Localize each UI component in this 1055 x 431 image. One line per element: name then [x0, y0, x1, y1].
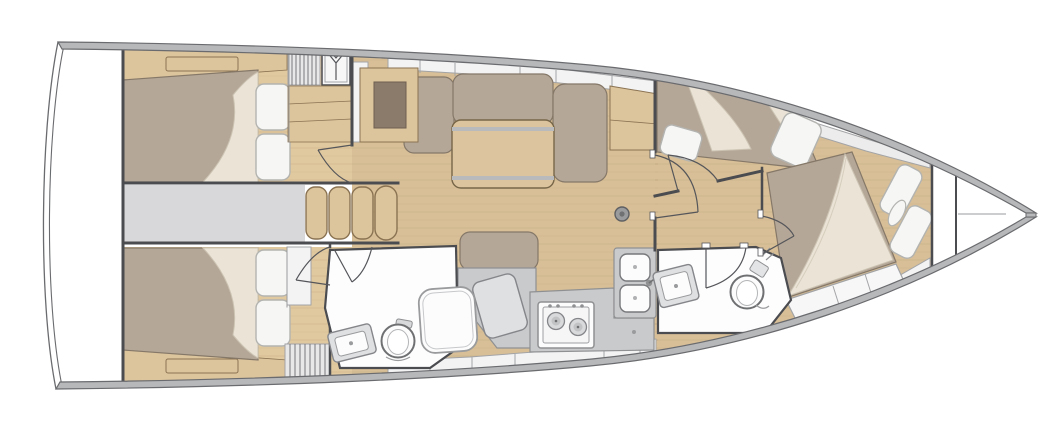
interior — [40, 36, 1050, 396]
step-1 — [306, 187, 327, 239]
toilet-seat — [388, 330, 409, 355]
pillow — [256, 134, 290, 180]
latch — [632, 330, 636, 334]
shower — [418, 286, 478, 354]
mast-post-center — [619, 211, 624, 216]
step-3 — [352, 187, 373, 239]
stove-knob — [548, 304, 552, 308]
nav-seat-cushion — [460, 232, 538, 270]
hinge — [702, 243, 710, 248]
step-4 — [375, 186, 397, 240]
table-leaf-seam — [452, 127, 554, 131]
hinge — [758, 248, 763, 256]
companionway-steps — [306, 186, 397, 240]
hinge — [758, 210, 763, 218]
table-leaf-seam — [452, 176, 554, 180]
yacht-floor-plan — [0, 0, 1055, 431]
hinge — [650, 212, 655, 220]
stove-knob — [572, 304, 576, 308]
pillow — [256, 84, 290, 130]
floor-plan-canvas — [0, 0, 1055, 431]
drain — [633, 265, 637, 269]
burner-dot — [577, 326, 580, 329]
companionway — [124, 185, 397, 242]
stove — [538, 302, 594, 348]
aft-head — [325, 246, 478, 368]
hinge — [650, 150, 655, 158]
drain — [633, 296, 637, 300]
bow-tip — [1026, 213, 1036, 217]
salon-table — [452, 120, 554, 188]
burner-dot — [555, 320, 558, 323]
settee-back-cushion — [453, 74, 553, 124]
toilet-seat — [737, 281, 758, 306]
cabin-bench — [288, 86, 352, 142]
stove-knob — [580, 304, 584, 308]
step-2 — [329, 187, 350, 239]
pillow — [256, 250, 290, 296]
forward-head — [652, 247, 791, 333]
mast-post — [615, 207, 629, 221]
stove-knob — [556, 304, 560, 308]
engine-box — [124, 185, 305, 242]
settee-corner-cushion — [553, 84, 607, 182]
pillow — [256, 300, 290, 346]
chart-desk-top — [374, 82, 406, 128]
hinge — [740, 243, 748, 248]
sideboard — [610, 86, 658, 150]
